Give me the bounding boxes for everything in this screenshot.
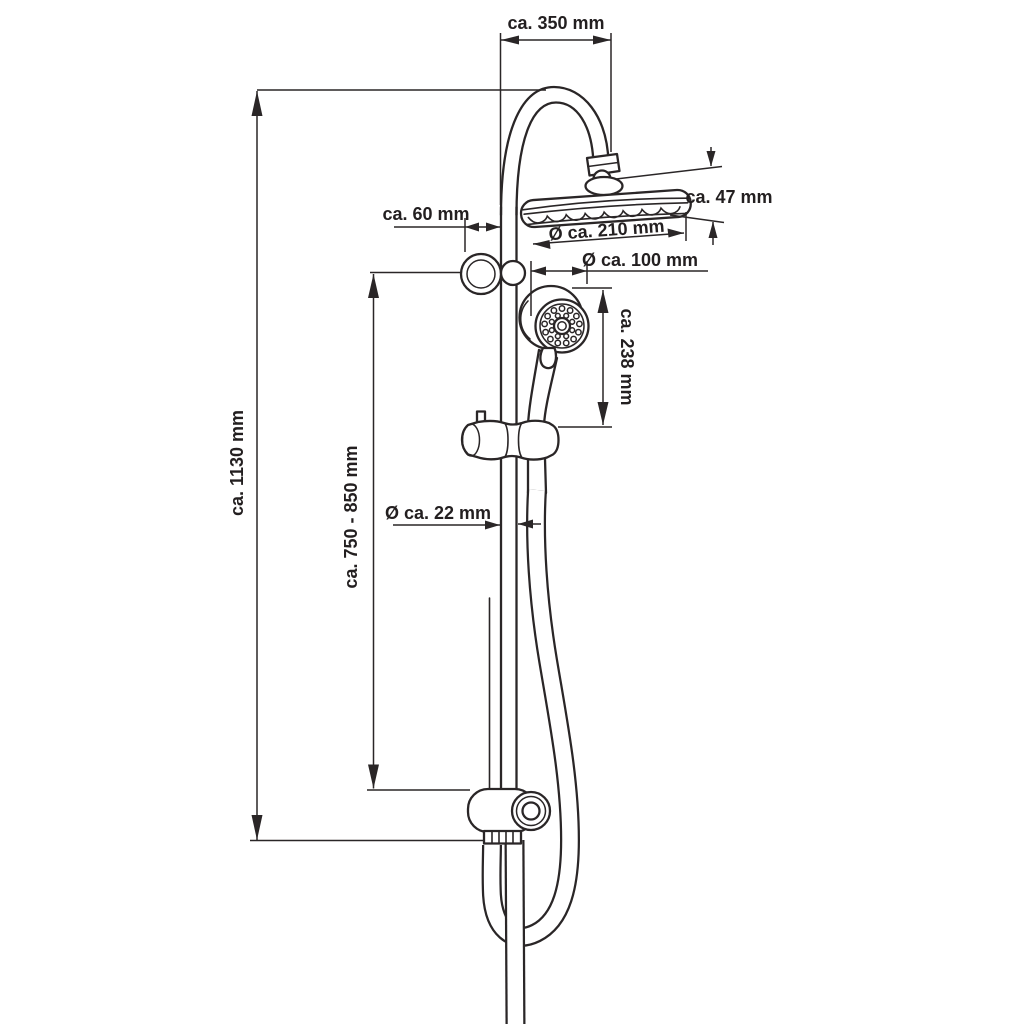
dim-label-rail-diameter: Ø ca. 22 mm <box>385 503 491 523</box>
dim-label-hand-diameter: Ø ca. 100 mm <box>582 250 698 270</box>
dim-label-head-height: ca. 47 mm <box>685 187 772 207</box>
dim-label-total-height: ca. 1130 mm <box>227 410 247 516</box>
hose-nut <box>484 831 521 844</box>
dim-label-bracket-depth: ca. 60 mm <box>382 204 469 224</box>
dim-total-height: ca. 1130 mm <box>227 90 546 841</box>
rail-pipe <box>490 207 517 800</box>
dim-label-bracket-span: ca. 750 - 850 mm <box>341 445 361 588</box>
hand-shower-head <box>520 286 589 368</box>
dim-label-hand-length: ca. 238 mm <box>617 308 637 405</box>
drop-hose <box>515 840 516 1024</box>
shower-set-dimension-drawing: ca. 350 mm ca. 1130 mm ca. 750 - 850 mm … <box>0 0 1024 1024</box>
dim-bracket-depth: ca. 60 mm <box>382 204 500 252</box>
mode-selector-tab <box>540 348 556 368</box>
dim-label-top-width: ca. 350 mm <box>507 13 604 33</box>
bracket-knob <box>501 261 525 285</box>
diagram-canvas: ca. 350 mm ca. 1130 mm ca. 750 - 850 mm … <box>0 0 1024 1024</box>
shower-hose <box>492 490 570 937</box>
inlet-face-inner-ring <box>523 803 540 820</box>
dim-bracket-span: ca. 750 - 850 mm <box>341 273 470 791</box>
lower-wall-bracket <box>468 789 550 844</box>
face-center-cap <box>554 318 570 334</box>
ball-joint-socket <box>586 177 623 195</box>
